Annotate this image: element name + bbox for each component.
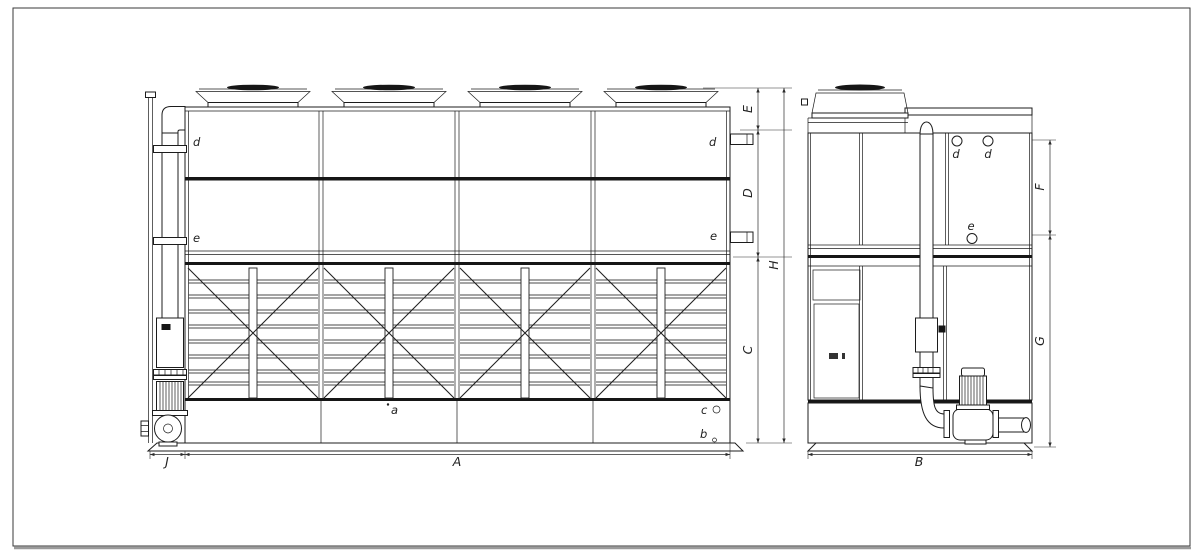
pump-support-side — [965, 440, 986, 444]
fan-hub-4 — [635, 85, 687, 91]
dim-D: D — [740, 188, 755, 198]
front-eliminator-band — [185, 262, 730, 265]
label-e-right: e — [710, 229, 717, 243]
technical-drawing: a c b d e d e — [0, 0, 1200, 559]
front-panel-divider — [185, 177, 730, 181]
stub-e — [731, 232, 754, 243]
fan-hub-1 — [227, 85, 279, 91]
pump-support-front — [159, 442, 177, 446]
label-e-left: e — [193, 231, 200, 245]
valve-indicator — [162, 324, 171, 330]
side-valve-body — [916, 318, 938, 352]
pump-suction-flange-side — [944, 411, 950, 438]
dim-A: A — [452, 454, 462, 469]
door-label-mark — [829, 353, 838, 359]
point-a-marker — [387, 403, 389, 405]
dim-G: G — [1032, 336, 1047, 346]
dim-B: B — [915, 454, 924, 469]
coupling-flange-upper — [154, 370, 187, 376]
fan-cowls — [196, 85, 718, 107]
fan-hub-3 — [499, 85, 551, 91]
side-view: d d e — [802, 85, 1033, 452]
fan-cowl-3 — [468, 85, 582, 107]
side-base — [808, 443, 1032, 451]
label-d-right: d — [709, 135, 717, 149]
pump-suction-flange-front — [141, 421, 149, 436]
drawing-sheet: a c b d e d e — [0, 0, 1200, 559]
label-a: a — [391, 403, 398, 417]
front-casing — [185, 107, 730, 443]
dim-H: H — [766, 260, 781, 270]
front-pump — [141, 382, 188, 447]
dim-J: J — [162, 454, 169, 469]
front-riser-pipe — [154, 107, 187, 380]
pipe-end-cap — [1022, 418, 1031, 433]
pump-motor-front — [157, 382, 184, 411]
dim-C: C — [740, 345, 755, 354]
front-lattice-bottom-band — [185, 398, 730, 401]
front-base — [148, 443, 743, 451]
pump-motor-side — [960, 376, 987, 405]
fan-hub-2 — [363, 85, 415, 91]
pump-motor-flange-side — [957, 405, 990, 410]
label-side-e: e — [967, 219, 974, 233]
standpipe — [146, 92, 156, 443]
pump-motor-cap — [962, 368, 985, 376]
side-coupling-flange-lower — [913, 374, 940, 378]
label-side-d2: d — [984, 147, 992, 161]
door-handle-mark — [842, 353, 845, 359]
dim-bottom-side: B — [808, 451, 1032, 469]
fan-cowl-2 — [332, 85, 446, 107]
dim-E: E — [740, 105, 755, 113]
label-side-d1: d — [952, 147, 960, 161]
side-fan-hub — [835, 85, 885, 91]
side-coupling-flange-upper — [913, 368, 940, 374]
fan-cowl-4 — [604, 85, 718, 107]
coupling-flange-lower — [154, 376, 187, 380]
label-b: b — [700, 427, 707, 441]
side-valve-indicator — [939, 326, 946, 333]
side-fan-cowl — [812, 85, 908, 119]
stub-d — [731, 134, 754, 145]
pipe-dome-top — [920, 122, 933, 134]
fan-cowl-1 — [196, 85, 310, 107]
pump-volute-front — [155, 415, 182, 442]
pump-discharge-flange-side — [993, 411, 999, 438]
pipe-elbow-top — [162, 107, 185, 134]
label-d-left: d — [193, 135, 201, 149]
pump-volute-side — [953, 409, 993, 440]
cowl-bracket — [802, 99, 808, 105]
front-view: a c b d e d e — [141, 85, 753, 451]
dim-F: F — [1032, 183, 1047, 191]
pipe-flange-1 — [154, 146, 187, 153]
dim-right-side: F G — [1032, 140, 1056, 447]
label-c: c — [701, 403, 708, 417]
pipe-flange-2 — [154, 238, 187, 245]
